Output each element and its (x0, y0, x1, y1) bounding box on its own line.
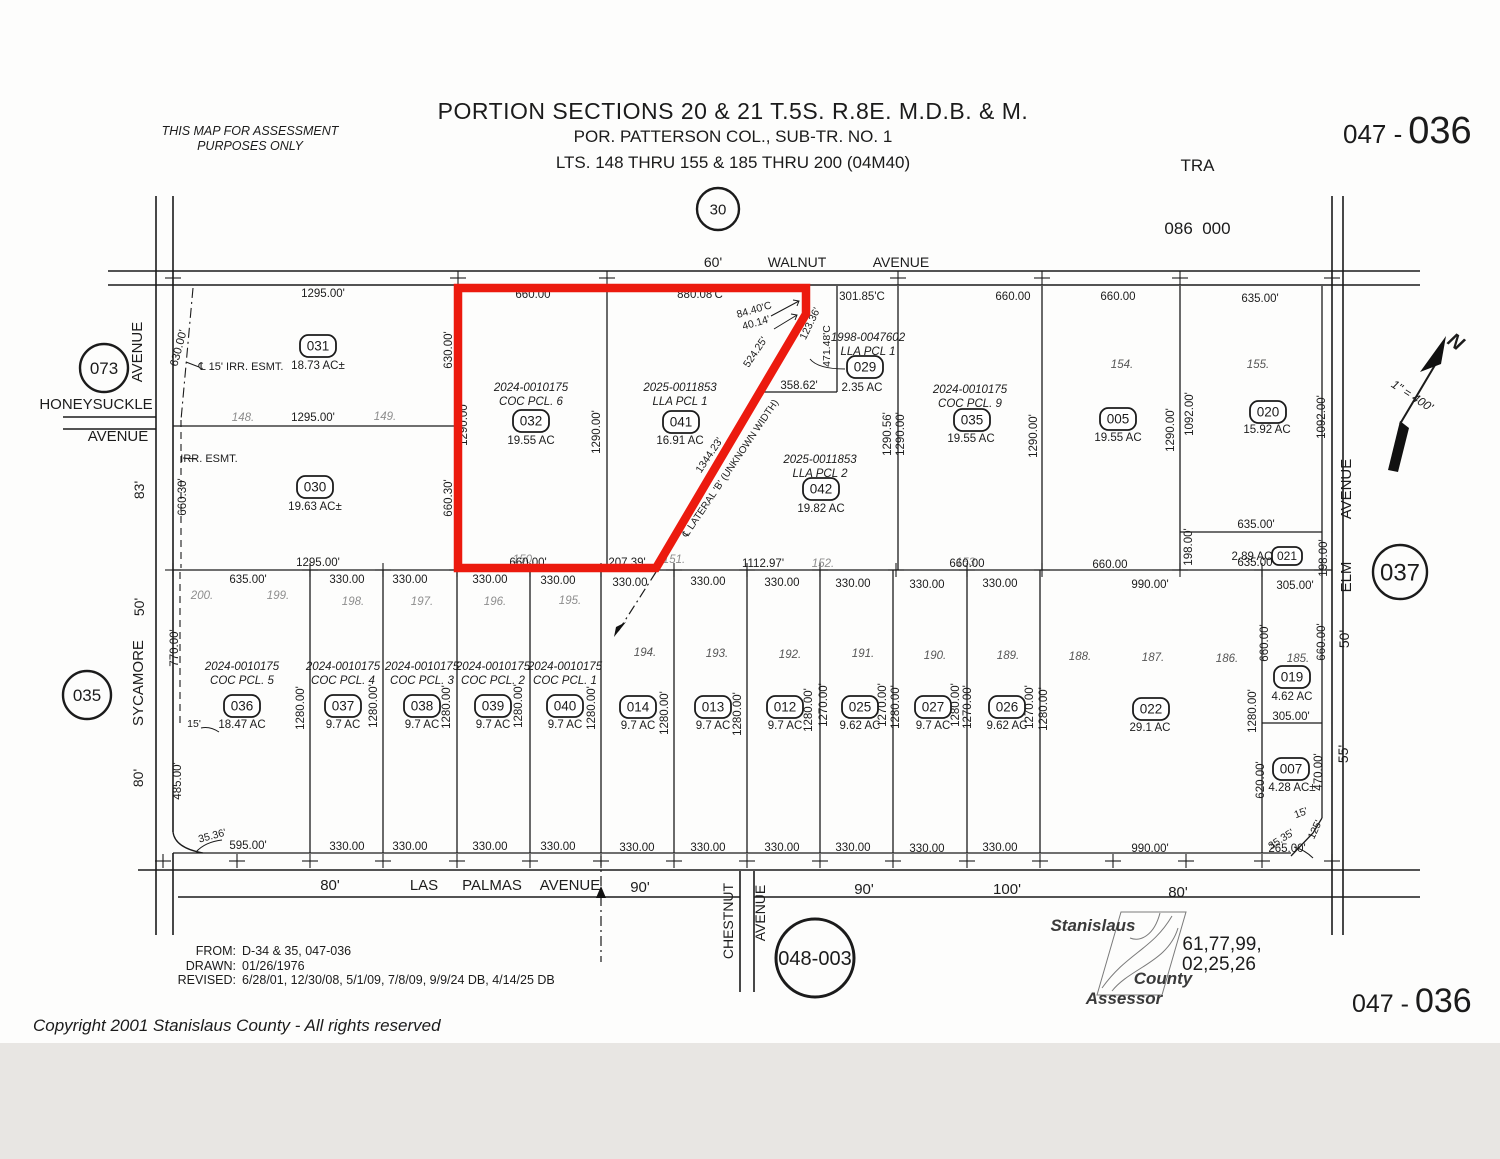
dim-arrow (771, 300, 799, 316)
map-label: 90' (854, 881, 874, 898)
map-label: 330.00 (764, 577, 799, 589)
parcel-number: 013 (702, 700, 725, 715)
map-label: 154. (1111, 359, 1133, 371)
parcel-number: 038 (411, 699, 434, 714)
parcel-number: 020 (1257, 405, 1280, 420)
assessor-map-page: THIS MAP FOR ASSESSMENT PURPOSES ONLY PO… (0, 0, 1500, 1159)
map-label: COC PCL. 1 (533, 675, 597, 687)
map-label: WALNUT (768, 254, 827, 270)
from-row: FROM: D-34 & 35, 047-036 (150, 944, 555, 959)
map-label: 50' (1336, 630, 1352, 648)
map-label: HONEYSUCKLE (39, 396, 152, 413)
map-label: 198.00' (1318, 539, 1330, 576)
page-number-bottom: 047 - 036 (1352, 982, 1472, 1021)
map-label: 330.00 (472, 841, 507, 853)
map-label: 80' (320, 877, 340, 894)
map-label: 195. (559, 595, 581, 607)
map-label: 50' (131, 598, 147, 616)
map-label: 185. (1287, 653, 1309, 665)
map-label: CHESTNUT (720, 882, 736, 959)
lateral-arrowhead (614, 622, 626, 637)
map-label: 301.85'C (839, 291, 885, 303)
map-label: 330.00 (909, 579, 944, 591)
map-label: AVENUE (540, 877, 601, 894)
map-label: 193. (706, 648, 728, 660)
map-label: Stanislaus (1050, 916, 1135, 935)
parcel-number: 019 (1281, 670, 1304, 685)
map-label: 1280.00' (368, 684, 380, 728)
map-label: 635.00' (229, 574, 266, 586)
parcel-number: 032 (520, 414, 543, 429)
from-value: D-34 & 35, 047-036 (242, 944, 351, 959)
map-label: 9.7 AC (768, 720, 803, 732)
map-label: LLA PCL 1 (653, 396, 708, 408)
parcel-number: 037 (332, 699, 355, 714)
parcel-number: 007 (1280, 762, 1303, 777)
map-label: 1295.00' (291, 412, 335, 424)
parcel-number: 027 (922, 700, 945, 715)
map-label: 330.00 (540, 575, 575, 587)
map-label: 1280.00' (732, 692, 744, 736)
parcel-number: 036 (231, 699, 254, 714)
map-label: 4.28 AC± (1268, 782, 1315, 794)
map-label: 191. (852, 648, 874, 660)
map-label: 1112.97' (742, 558, 784, 570)
map-label: 470.00' (1313, 753, 1325, 790)
from-label: FROM: (150, 944, 236, 959)
page-number-suffix: 036 (1415, 982, 1472, 1021)
map-label: AVENUE (873, 254, 930, 270)
map-label: SYCAMORE (130, 640, 147, 726)
map-label: 1" = 400' (1389, 377, 1437, 415)
map-label: 1290.56' (882, 412, 894, 456)
map-label: 660.30' (443, 479, 455, 516)
map-label: 35.36' (197, 827, 227, 846)
parcel-number: 014 (627, 700, 650, 715)
map-label: COC PCL. 6 (499, 396, 564, 408)
map-label: 1270.00' (962, 685, 974, 729)
map-label: 9.7 AC (405, 719, 440, 731)
map-label: 90' (630, 879, 650, 896)
map-label: 194. (634, 647, 656, 659)
map-label: ELM (1338, 562, 1355, 593)
parcel-number: 026 (996, 700, 1019, 715)
map-label: 148. (232, 412, 254, 424)
map-label: 660.30' (177, 478, 189, 515)
revised-row: REVISED: 6/28/01, 12/30/08, 5/1/09, 7/8/… (150, 973, 555, 988)
map-label: 2024-0010175 (455, 661, 531, 673)
map-label: 1280.00' (803, 688, 815, 732)
map-label: 198.00' (1183, 528, 1195, 565)
map-label: 187. (1142, 652, 1164, 664)
parcel-number: 022 (1140, 702, 1163, 717)
map-label: 660.00 (1100, 291, 1135, 303)
map-label: ℄ 15' IRR. ESMT. (198, 361, 284, 373)
map-label: 83' (131, 481, 147, 499)
copyright-text: Copyright 2001 Stanislaus County - All r… (33, 1016, 441, 1036)
map-label: 19.82 AC (797, 503, 844, 515)
map-label: 635.00' (1237, 557, 1274, 569)
map-label: 660.00 (1092, 559, 1127, 571)
parcel-number: 005 (1107, 412, 1130, 427)
dim-leader (201, 728, 219, 733)
map-label: 19.55 AC (507, 435, 554, 447)
map-label: 485.00' (172, 762, 184, 799)
parcel-number: 021 (1277, 549, 1297, 563)
map-label: 199. (267, 590, 289, 602)
map-label: 330.00 (909, 843, 944, 855)
map-label: 330.00 (472, 574, 507, 586)
map-label: 55' (1335, 745, 1351, 763)
map-label: 1280.00' (513, 684, 525, 728)
map-label: COC PCL. 4 (311, 675, 375, 687)
map-label: 1280.00' (659, 691, 671, 735)
map-label: 305.00' (1276, 580, 1313, 592)
map-label: 2024-0010175 (932, 384, 1008, 396)
map-label: 330.00 (392, 574, 427, 586)
map-label: PALMAS (462, 877, 522, 894)
drawn-label: DRAWN: (150, 959, 236, 974)
map-label: 9.7 AC (696, 720, 731, 732)
map-label: 2025-0011853 (782, 454, 857, 466)
map-label: 19.55 AC (947, 433, 994, 445)
map-label: 15.92 AC (1243, 424, 1290, 436)
map-label: 330.00 (835, 842, 870, 854)
map-label: 630.00' (443, 331, 455, 368)
parcel-number: 035 (961, 413, 984, 428)
map-label: 330.00 (982, 842, 1017, 854)
map-label: 1092.00' (1316, 395, 1328, 439)
map-label: 635.00' (1237, 519, 1274, 531)
drawn-row: DRAWN: 01/26/1976 (150, 959, 555, 974)
north-arrow-head (1420, 336, 1446, 372)
map-label: 152. (812, 558, 834, 570)
map-label: 9.62 AC (987, 720, 1028, 732)
parcel-number: 012 (774, 700, 797, 715)
map-label: 19.55 AC (1094, 432, 1141, 444)
map-label: 2024-0010175 (527, 661, 603, 673)
map-label: 9.7 AC (326, 719, 361, 731)
map-label: 200. (190, 590, 213, 602)
map-label: 2024-0010175 (384, 661, 460, 673)
map-label: 1295.00' (301, 288, 345, 300)
map-label: 990.00' (1131, 579, 1168, 591)
page-junction-number: 035 (73, 686, 101, 705)
map-label: 330.00 (540, 841, 575, 853)
map-label: 2024-0010175 (204, 661, 280, 673)
map-label: 990.00' (1131, 843, 1168, 855)
map-label: 1295.00' (296, 557, 340, 569)
map-label: 125' (1306, 818, 1325, 841)
page-number-prefix: 047 - (1352, 990, 1409, 1019)
map-label: 190. (924, 650, 946, 662)
map-label: 15' (1292, 805, 1309, 821)
map-label: 1290.00' (1165, 408, 1177, 452)
map-label: 330.00 (329, 841, 364, 853)
map-label: 18.73 AC± (291, 360, 345, 372)
scan-edge-strip (0, 1043, 1500, 1159)
map-label: 1280.00' (1038, 687, 1050, 731)
map-label: 471.48'C (821, 325, 833, 367)
map-label: 29.1 AC (1130, 722, 1171, 734)
map-label: AVENUE (129, 322, 146, 383)
map-label: 60' (704, 254, 722, 270)
revised-label: REVISED: (150, 973, 236, 988)
map-label: 80' (1168, 884, 1188, 901)
map-label: 660.00' (1259, 624, 1271, 661)
map-label: 330.00 (764, 842, 799, 854)
parcel-number: 042 (810, 482, 833, 497)
map-label: 660.00' (1316, 623, 1328, 660)
map-label: 2024-0010175 (305, 661, 381, 673)
map-label: 1280.00' (1247, 689, 1259, 733)
map-label: N (1443, 329, 1468, 356)
map-label: AVENUE (88, 428, 149, 445)
map-label: 9.7 AC (916, 720, 951, 732)
parcel-number: 031 (307, 339, 330, 354)
map-label: 197. (411, 596, 433, 608)
parcel-number: 041 (670, 415, 693, 430)
page-junction-number: 037 (1380, 560, 1420, 587)
map-label: 305.00' (1272, 711, 1309, 723)
north-arrow-blade (1388, 421, 1409, 472)
map-label: 2024-0010175 (493, 382, 569, 394)
revised-value: 6/28/01, 12/30/08, 5/1/09, 7/8/09, 9/9/2… (242, 973, 555, 988)
map-label: 9.7 AC (548, 719, 583, 731)
parcel-number: 029 (854, 360, 877, 375)
map-label: 100' (993, 881, 1021, 898)
map-label: 2.35 AC (842, 382, 883, 394)
map-label: 330.00 (690, 576, 725, 588)
map-label: 620.00' (1255, 761, 1267, 798)
map-label: 635.00' (1241, 293, 1278, 305)
page-junction-number: 30 (710, 201, 727, 218)
parcel-number: 030 (304, 480, 327, 495)
map-label: 189. (997, 650, 1019, 662)
map-label: 1280.00' (890, 685, 902, 729)
parcel-number: 025 (849, 700, 872, 715)
map-label: 9.62 AC (840, 720, 881, 732)
map-label: 330.00 (835, 578, 870, 590)
map-label: 1998-0047602 (831, 332, 906, 344)
map-label: 330.00 (612, 577, 647, 589)
map-label: 16.91 AC (656, 435, 703, 447)
esmt-leader (186, 362, 199, 367)
map-label: 595.00' (229, 840, 266, 852)
map-label: 770.00' (169, 629, 181, 666)
map-label: Assessor (1085, 989, 1164, 1008)
map-label: 19.63 AC± (288, 501, 342, 513)
map-label: 330.00 (329, 574, 364, 586)
map-label: 18.47 AC (218, 719, 265, 731)
map-label: 1290.00' (1028, 414, 1040, 458)
map-label: 1270.00' (818, 683, 830, 727)
map-label: 330.00 (690, 842, 725, 854)
map-label: 9.7 AC (476, 719, 511, 731)
map-label: 02,25,26 (1182, 954, 1256, 975)
map-label: 1092.00' (1184, 392, 1196, 436)
map-label: 192. (779, 649, 801, 661)
map-label: 15' (187, 718, 201, 730)
map-label: 198. (342, 596, 364, 608)
parcel-number: 040 (554, 699, 577, 714)
map-label: AVENUE (1338, 459, 1355, 520)
map-label: 149. (374, 411, 396, 423)
map-label: 80' (130, 769, 146, 787)
map-label: 9.7 AC (621, 720, 656, 732)
map-label: 61,77,99, (1182, 934, 1261, 955)
map-label: IRR. ESMT. (180, 453, 237, 465)
map-label: 524.25' (741, 335, 770, 370)
map-label: 330.00 (982, 578, 1017, 590)
map-label: LAS (410, 877, 438, 894)
parcel-number: 039 (482, 699, 505, 714)
map-label: 1290.00' (895, 412, 907, 456)
map-label: 330.00 (619, 842, 654, 854)
map-label: 358.62' (780, 380, 817, 392)
map-label: 1280.00' (441, 685, 453, 729)
map-label: 2025-0011853 (642, 382, 717, 394)
map-label: 1280.00' (295, 686, 307, 730)
map-label: 155. (1247, 359, 1269, 371)
page-junction-number: 073 (90, 359, 118, 378)
page-junction-number: 048-003 (778, 948, 851, 970)
map-label: COC PCL. 5 (210, 675, 275, 687)
map-label: 188. (1069, 651, 1091, 663)
map-label: 660.00 (995, 291, 1030, 303)
map-label: 660.00 (949, 558, 984, 570)
map-label: AVENUE (752, 885, 768, 942)
map-label: 1290.00' (591, 410, 603, 454)
map-label: 186. (1216, 653, 1238, 665)
map-label: 1280.00' (586, 686, 598, 730)
map-label: 196. (484, 596, 506, 608)
map-label: 330.00 (392, 841, 427, 853)
drawn-value: 01/26/1976 (242, 959, 305, 974)
revision-block: FROM: D-34 & 35, 047-036 DRAWN: 01/26/19… (150, 944, 555, 988)
map-label: 4.62 AC (1272, 691, 1313, 703)
